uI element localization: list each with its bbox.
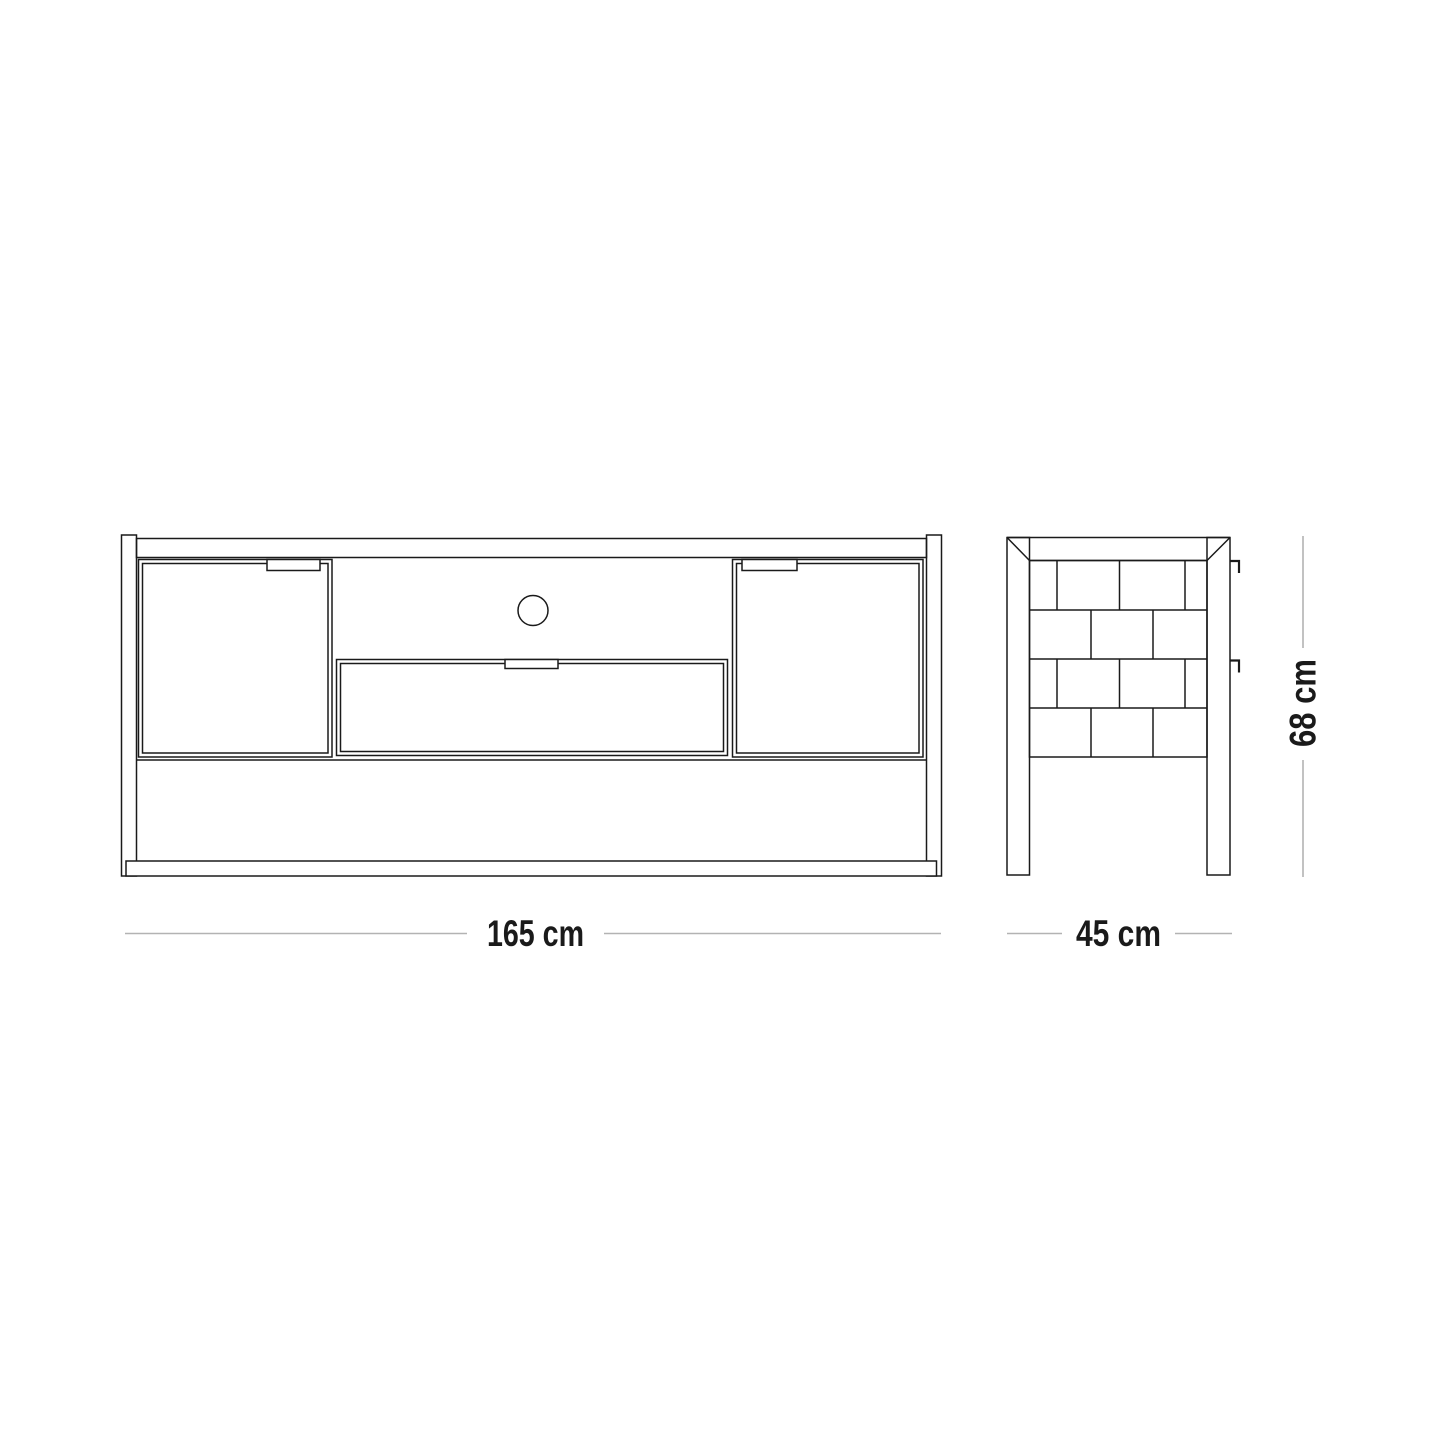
front-right-post [927, 535, 942, 876]
side-brick-panel [1030, 561, 1208, 758]
front-right-door-handle-notch [742, 560, 797, 571]
front-left-door-handle-notch [267, 560, 320, 571]
side-wall-hook-bottom [1230, 661, 1239, 673]
front-bottom-board [126, 861, 937, 876]
front-drawer-inner [341, 664, 724, 752]
front-cable-hole [518, 596, 548, 626]
side-view [1007, 538, 1239, 876]
front-top-board [137, 539, 927, 558]
front-left-post [122, 535, 137, 876]
width-dimension-label: 165 cm [487, 913, 584, 954]
side-right-leg [1207, 538, 1230, 876]
front-drawer-outer [337, 660, 728, 756]
front-right-door-outer [733, 560, 924, 758]
height-dimension-label: 68 cm [1283, 659, 1324, 747]
front-left-door-inner [143, 564, 329, 754]
side-wall-hook-top [1230, 561, 1239, 573]
side-top-board-miter-left [1008, 538, 1030, 561]
front-left-door-outer [139, 560, 333, 758]
front-right-door-inner [737, 564, 920, 754]
depth-dimension-label: 45 cm [1076, 913, 1161, 954]
furniture-technical-drawing: 165 cm 45 cm 68 cm [0, 0, 1445, 1445]
front-drawer-handle-notch [505, 660, 558, 669]
front-view [122, 535, 942, 876]
side-left-leg [1007, 538, 1030, 876]
side-top-board-miter-right [1207, 538, 1230, 561]
